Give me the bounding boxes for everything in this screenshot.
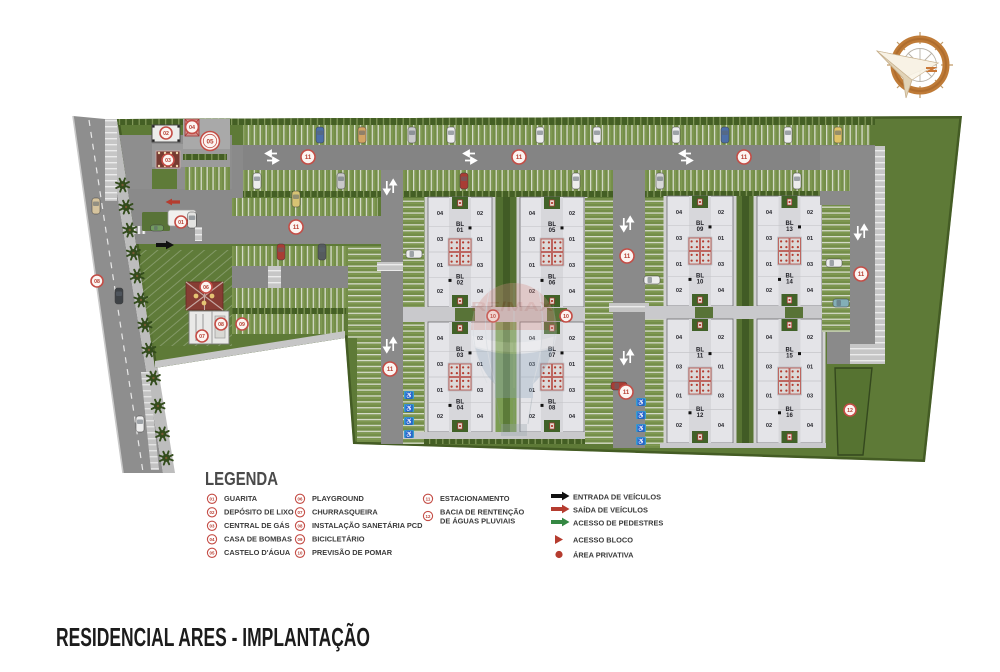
svg-text:11: 11	[624, 254, 631, 260]
svg-text:02: 02	[163, 131, 169, 137]
svg-text:04: 04	[437, 211, 444, 217]
svg-text:01: 01	[178, 220, 184, 226]
svg-text:12: 12	[697, 413, 704, 419]
svg-text:02: 02	[437, 289, 443, 295]
svg-text:05: 05	[549, 228, 556, 234]
svg-text:01: 01	[569, 237, 575, 243]
svg-text:03: 03	[676, 364, 682, 370]
svg-text:04: 04	[437, 336, 444, 342]
svg-text:02: 02	[676, 288, 682, 294]
svg-text:11: 11	[623, 390, 630, 396]
svg-text:BICICLETÁRIO: BICICLETÁRIO	[312, 535, 365, 544]
svg-text:02: 02	[210, 510, 215, 515]
svg-text:♿: ♿	[637, 411, 645, 419]
svg-text:INSTALAÇÃO SANETÁRIA PCD: INSTALAÇÃO SANETÁRIA PCD	[312, 521, 423, 530]
svg-text:03: 03	[569, 263, 575, 269]
svg-text:08: 08	[94, 279, 100, 285]
svg-text:16: 16	[786, 413, 793, 419]
svg-text:PREVISÃO DE POMAR: PREVISÃO DE POMAR	[312, 548, 393, 557]
svg-text:11: 11	[516, 155, 523, 161]
svg-text:14: 14	[786, 279, 793, 285]
svg-text:ESTACIONAMENTO: ESTACIONAMENTO	[440, 494, 510, 503]
svg-text:04: 04	[766, 210, 773, 216]
svg-text:07: 07	[298, 510, 303, 515]
svg-text:04: 04	[189, 125, 195, 131]
svg-text:03: 03	[210, 524, 215, 529]
svg-text:08: 08	[549, 405, 556, 411]
svg-text:04: 04	[676, 335, 683, 341]
svg-text:03: 03	[807, 394, 813, 400]
svg-text:10: 10	[563, 314, 569, 320]
svg-text:02: 02	[807, 335, 813, 341]
svg-text:DEPÓSITO DE LIXO: DEPÓSITO DE LIXO	[224, 508, 294, 517]
svg-text:02: 02	[766, 288, 772, 294]
svg-text:11: 11	[697, 354, 704, 360]
svg-text:CASA DE BOMBAS: CASA DE BOMBAS	[224, 535, 292, 544]
svg-text:03: 03	[569, 388, 575, 394]
svg-text:ENTRADA DE VEÍCULOS: ENTRADA DE VEÍCULOS	[573, 493, 661, 502]
svg-text:06: 06	[298, 497, 303, 502]
svg-text:01: 01	[457, 228, 464, 234]
svg-text:11: 11	[858, 272, 865, 278]
svg-text:03: 03	[165, 158, 171, 164]
svg-text:11: 11	[426, 497, 431, 502]
svg-text:01: 01	[477, 237, 483, 243]
svg-text:03: 03	[477, 263, 483, 269]
svg-text:04: 04	[477, 289, 484, 295]
svg-text:GUARITA: GUARITA	[224, 494, 258, 503]
svg-text:CENTRAL DE GÁS: CENTRAL DE GÁS	[224, 521, 290, 530]
svg-text:11: 11	[741, 155, 748, 161]
svg-text:02: 02	[569, 211, 575, 217]
svg-text:04: 04	[569, 414, 576, 420]
svg-text:01: 01	[437, 388, 443, 394]
svg-text:02: 02	[477, 211, 483, 217]
svg-text:♿: ♿	[405, 430, 413, 438]
svg-text:07: 07	[199, 334, 205, 340]
svg-text:01: 01	[766, 262, 772, 268]
svg-text:ÁREA PRIVATIVA: ÁREA PRIVATIVA	[573, 551, 634, 560]
svg-text:02: 02	[718, 335, 724, 341]
svg-text:11: 11	[387, 367, 394, 373]
svg-text:03: 03	[437, 362, 443, 368]
svg-text:03: 03	[766, 236, 772, 242]
svg-text:12: 12	[847, 408, 853, 414]
svg-text:04: 04	[676, 210, 683, 216]
svg-text:LEGENDA: LEGENDA	[205, 468, 278, 489]
svg-text:09: 09	[298, 537, 303, 542]
svg-text:01: 01	[718, 236, 724, 242]
svg-text:01: 01	[437, 263, 443, 269]
svg-text:01: 01	[807, 236, 813, 242]
svg-text:04: 04	[529, 211, 536, 217]
svg-text:15: 15	[786, 354, 793, 360]
svg-text:10: 10	[298, 551, 303, 556]
svg-text:03: 03	[718, 262, 724, 268]
svg-text:01: 01	[718, 364, 724, 370]
svg-text:03: 03	[529, 237, 535, 243]
svg-text:02: 02	[457, 280, 464, 286]
svg-text:02: 02	[718, 210, 724, 216]
svg-text:ACESSO DE PEDESTRES: ACESSO DE PEDESTRES	[573, 519, 663, 528]
svg-text:♿: ♿	[637, 424, 645, 432]
svg-text:BACIA DE RENTENÇÃO: BACIA DE RENTENÇÃO	[440, 508, 525, 517]
svg-text:♿: ♿	[405, 404, 413, 412]
svg-text:02: 02	[676, 423, 682, 429]
svg-text:RE/MAX: RE/MAX	[471, 299, 554, 314]
svg-text:02: 02	[766, 423, 772, 429]
svg-text:11: 11	[293, 225, 300, 231]
svg-text:♿: ♿	[405, 417, 413, 425]
svg-text:CASTELO D'ÁGUA: CASTELO D'ÁGUA	[224, 548, 291, 557]
svg-text:♿: ♿	[405, 391, 413, 399]
svg-text:04: 04	[477, 414, 484, 420]
svg-text:01: 01	[210, 497, 215, 502]
svg-text:04: 04	[718, 288, 725, 294]
svg-text:03: 03	[676, 236, 682, 242]
svg-text:02: 02	[807, 210, 813, 216]
svg-text:05: 05	[206, 139, 214, 146]
svg-text:CHURRASQUEIRA: CHURRASQUEIRA	[312, 508, 378, 517]
svg-text:♿: ♿	[637, 437, 645, 445]
svg-text:05: 05	[210, 551, 215, 556]
svg-text:01: 01	[529, 263, 535, 269]
svg-text:03: 03	[766, 364, 772, 370]
svg-text:04: 04	[766, 335, 773, 341]
svg-text:06: 06	[549, 280, 556, 286]
svg-text:01: 01	[569, 362, 575, 368]
svg-text:♿: ♿	[637, 398, 645, 406]
svg-text:04: 04	[718, 423, 725, 429]
svg-text:SAÍDA DE VEÍCULOS: SAÍDA DE VEÍCULOS	[573, 506, 648, 515]
svg-text:02: 02	[569, 336, 575, 342]
svg-text:11: 11	[305, 155, 312, 161]
svg-text:RESIDENCIAL ARES - IMPLANTAÇÃO: RESIDENCIAL ARES - IMPLANTAÇÃO	[56, 622, 370, 652]
svg-text:03: 03	[457, 353, 464, 359]
svg-text:04: 04	[210, 537, 215, 542]
svg-text:12: 12	[426, 514, 431, 519]
svg-text:04: 04	[807, 423, 814, 429]
svg-text:01: 01	[807, 364, 813, 370]
svg-text:03: 03	[718, 394, 724, 400]
svg-text:PLAYGROUND: PLAYGROUND	[312, 494, 365, 503]
svg-text:08: 08	[218, 322, 224, 328]
svg-text:02: 02	[437, 414, 443, 420]
svg-text:01: 01	[766, 394, 772, 400]
svg-text:01: 01	[676, 262, 682, 268]
svg-text:13: 13	[786, 227, 793, 233]
svg-text:03: 03	[477, 388, 483, 394]
svg-text:06: 06	[203, 285, 209, 291]
svg-text:09: 09	[697, 227, 704, 233]
svg-text:DE ÁGUAS PLUVIAIS: DE ÁGUAS PLUVIAIS	[440, 517, 515, 526]
svg-text:03: 03	[807, 262, 813, 268]
svg-text:09: 09	[239, 322, 245, 328]
svg-text:04: 04	[807, 288, 814, 294]
svg-text:04: 04	[457, 405, 464, 411]
svg-text:10: 10	[697, 279, 704, 285]
svg-text:01: 01	[676, 394, 682, 400]
svg-text:ACESSO BLOCO: ACESSO BLOCO	[573, 536, 633, 545]
svg-text:04: 04	[569, 289, 576, 295]
svg-text:03: 03	[437, 237, 443, 243]
svg-text:08: 08	[298, 524, 303, 529]
